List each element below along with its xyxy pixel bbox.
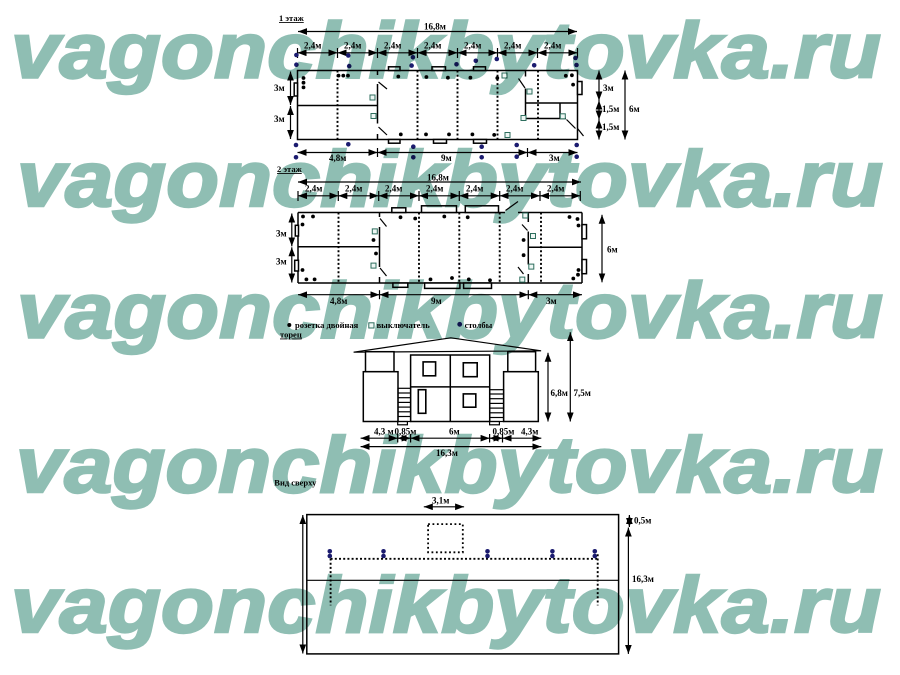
svg-text:1,5м: 1,5м <box>602 104 619 114</box>
svg-text:vagonchikbytovka.ru: vagonchikbytovka.ru <box>17 134 883 223</box>
svg-text:6м: 6м <box>629 104 640 114</box>
svg-text:vagonchikbytovka.ru: vagonchikbytovka.ru <box>17 266 883 355</box>
svg-text:3м: 3м <box>276 229 287 239</box>
svg-text:6м: 6м <box>607 245 618 255</box>
svg-text:vagonchikbytovka.ru: vagonchikbytovka.ru <box>11 560 881 649</box>
svg-text:3м: 3м <box>274 114 285 124</box>
svg-text:0,5м: 0,5м <box>634 516 651 526</box>
svg-text:vagonchikbytovka.ru: vagonchikbytovka.ru <box>16 420 883 509</box>
svg-text:6,8м: 6,8м <box>551 388 568 398</box>
svg-text:vagonchikbytovka.ru: vagonchikbytovka.ru <box>11 5 881 94</box>
svg-text:7,5м: 7,5м <box>574 388 591 398</box>
svg-text:1,5м: 1,5м <box>602 122 619 132</box>
